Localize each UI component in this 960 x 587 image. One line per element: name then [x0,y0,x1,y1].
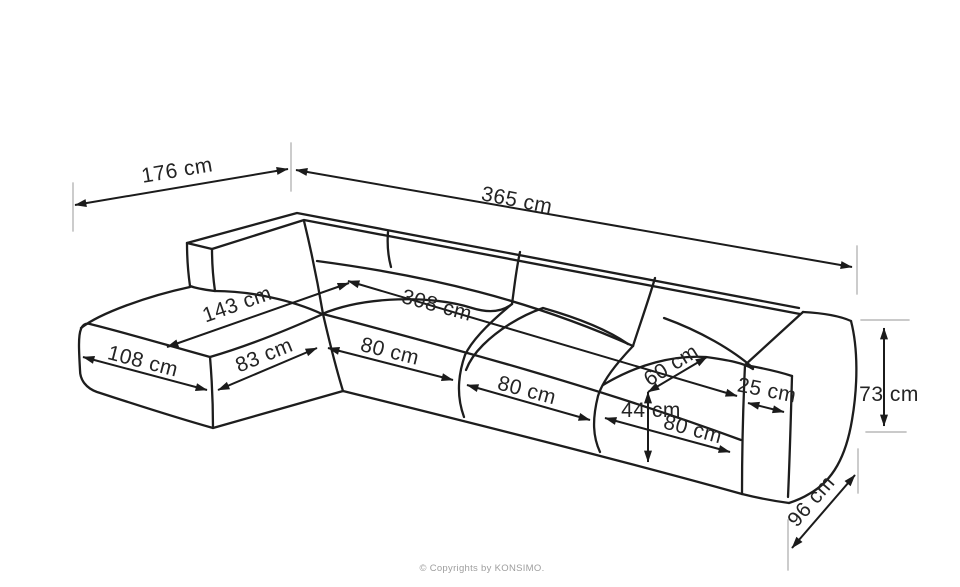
dimension-label-overall-width: 365 cm [479,182,554,218]
dimension-label-overall-height: 73 cm [859,383,919,406]
chaise-outer-edge [81,287,190,328]
corner-seam [304,221,323,314]
backrest-post-outer-edge [187,243,190,286]
dimension-label-seat-height: 44 cm [621,399,681,422]
backrest-post-base [190,286,215,291]
dimension-label-armrest-width: 25 cm [735,374,798,408]
chaise-side-bottom-edge [213,391,343,428]
chaise-front-face [79,324,213,428]
sofa-dimension-diagram: 176 cm 365 cm 143 cm 308 cm 108 cm 83 cm… [0,0,960,587]
backrest-post-top-edge [187,243,212,249]
seat-front-left-edge [323,314,343,391]
backrest-post-inner-edge [212,249,215,291]
diagram-canvas: 176 cm 365 cm 143 cm 308 cm 108 cm 83 cm… [0,0,960,587]
dimension-label-chaise-front-width: 108 cm [105,341,180,381]
copyright-text: © Copyrights by KONSIMO. [419,563,544,574]
armrest-top-front-edge [745,365,792,376]
dimension-line-overall-width [296,170,852,267]
dimension-label-chaise-length: 143 cm [199,282,274,328]
armrest-top-inner-edge [745,312,803,365]
sofa-outline [79,213,856,503]
dimension-labels: 176 cm 365 cm 143 cm 308 cm 108 cm 83 cm… [105,153,919,531]
dimension-lines [75,169,884,548]
backrest-divider-3 [633,278,655,346]
seat2-left-shoulder [466,308,543,370]
dimension-label-seat-width: 308 cm [399,285,474,326]
armrest-top-back-edge [803,312,851,321]
sofa-bottom-edge-right [742,494,789,503]
